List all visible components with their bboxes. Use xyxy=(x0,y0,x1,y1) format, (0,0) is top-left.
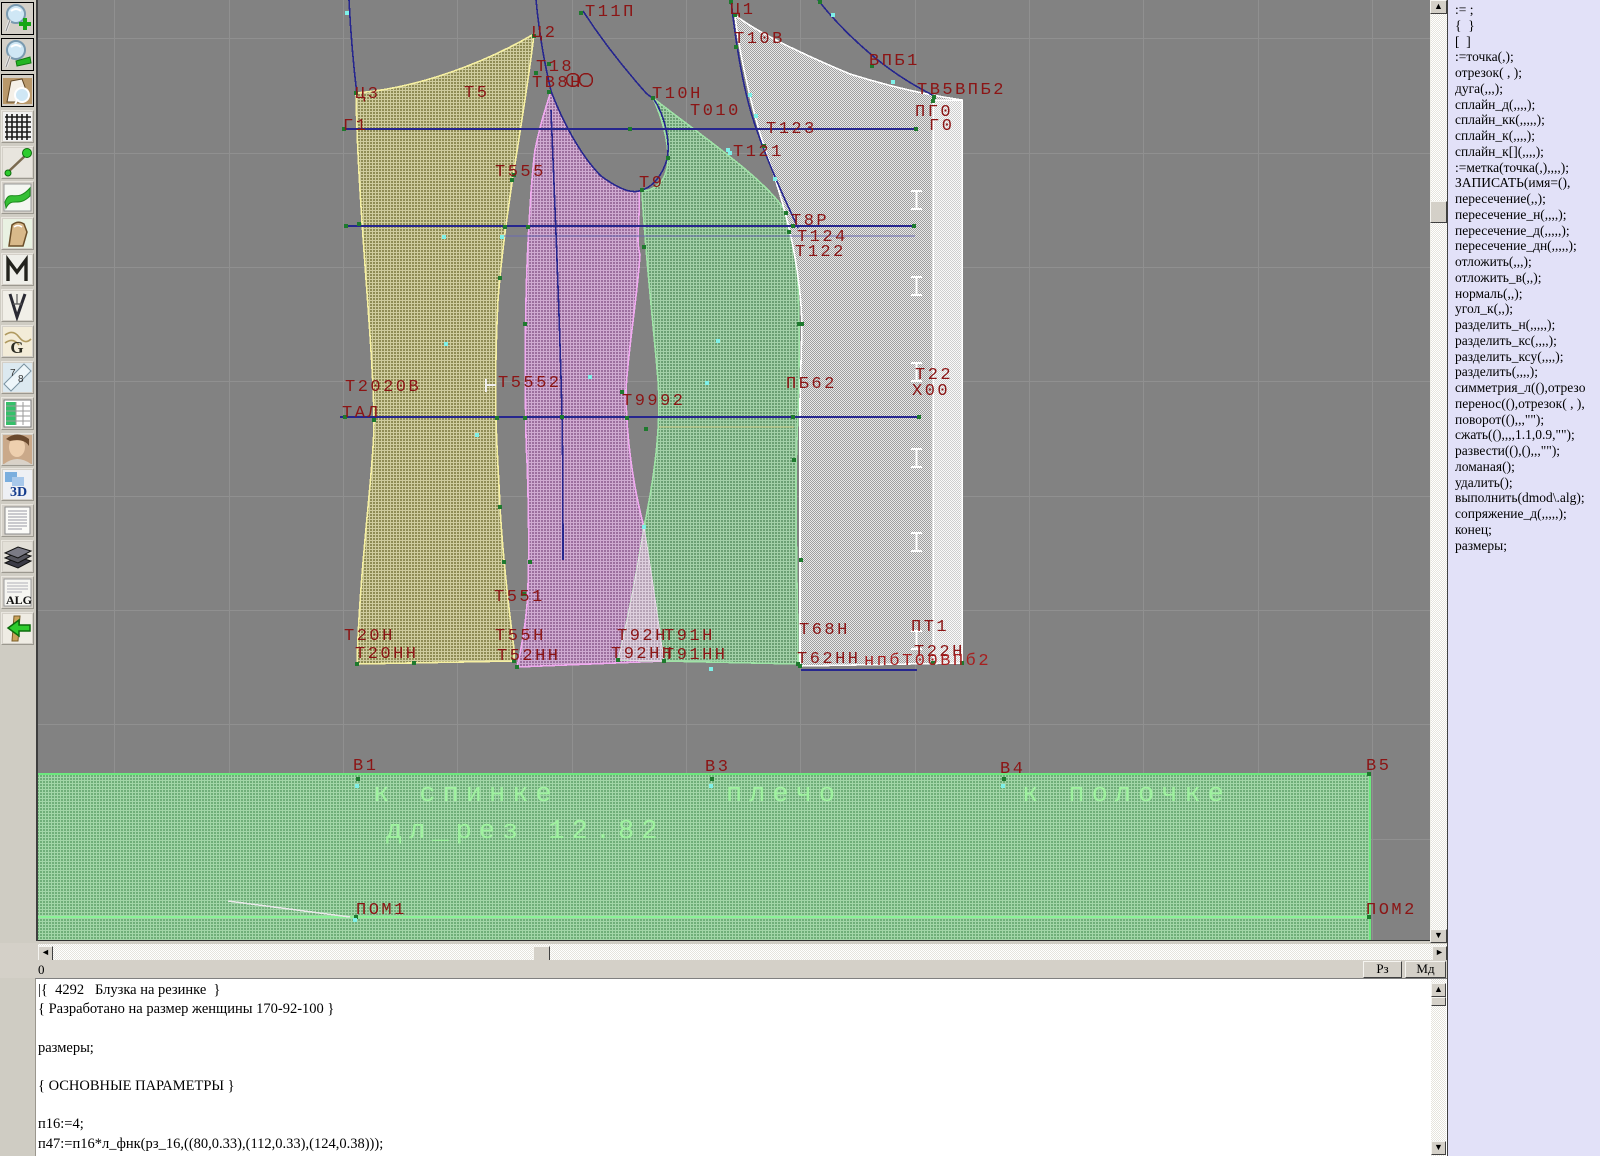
svg-text:В4: В4 xyxy=(1000,760,1025,779)
svg-text:Т122: Т122 xyxy=(795,243,846,262)
svg-text:к полочке: к полочке xyxy=(1022,780,1231,810)
svg-text:Ц2: Ц2 xyxy=(532,24,557,43)
svg-text:ПОМ1: ПОМ1 xyxy=(356,901,407,920)
svg-text:ПТ1: ПТ1 xyxy=(911,618,949,637)
svg-text:Т92Н: Т92Н xyxy=(617,627,668,646)
svg-text:Т91Н: Т91Н xyxy=(664,627,715,646)
svg-text:ТАЛ: ТАЛ xyxy=(342,404,380,423)
svg-text:Т68Н: Т68Н xyxy=(799,621,850,640)
svg-text:Т2020В: Т2020В xyxy=(345,378,421,397)
svg-text:Т10В: Т10В xyxy=(734,30,785,49)
svg-text:к спинке: к спинке xyxy=(373,780,559,810)
svg-text:Т9: Т9 xyxy=(639,174,664,193)
svg-text:Т121: Т121 xyxy=(733,143,784,162)
svg-text:Т5: Т5 xyxy=(464,84,489,103)
svg-text:дл_рез 12.82: дл_рез 12.82 xyxy=(386,817,664,847)
svg-text:Г0: Г0 xyxy=(929,117,954,136)
svg-text:Т9992: Т9992 xyxy=(622,392,686,411)
svg-text:Т010: Т010 xyxy=(690,102,741,121)
svg-text:3D: 3D xyxy=(10,485,27,500)
svg-text:Т20НН: Т20НН xyxy=(355,645,419,664)
svg-text:ТВ5ВПБ2: ТВ5ВПБ2 xyxy=(917,81,1006,100)
svg-text:7: 7 xyxy=(10,368,16,379)
svg-text:Т11П: Т11П xyxy=(585,3,636,22)
svg-text:ТВ8Н: ТВ8Н xyxy=(532,74,583,93)
svg-text:Г1: Г1 xyxy=(343,117,368,136)
svg-text:Х00: Х00 xyxy=(912,382,950,401)
svg-text:ПБ62: ПБ62 xyxy=(786,375,837,394)
svg-text:В1: В1 xyxy=(353,757,378,776)
svg-text:Ц3: Ц3 xyxy=(355,85,380,104)
svg-text:В5: В5 xyxy=(1366,757,1391,776)
svg-text:8: 8 xyxy=(18,374,24,385)
svg-text:Т555: Т555 xyxy=(495,163,546,182)
svg-text:нпбТ00ВПб2: нпбТ00ВПб2 xyxy=(864,652,991,671)
svg-text:ВПБ1: ВПБ1 xyxy=(869,52,920,71)
svg-text:G: G xyxy=(10,338,23,357)
svg-text:Т62НН: Т62НН xyxy=(797,650,861,669)
svg-text:Т91НН: Т91НН xyxy=(664,646,728,665)
svg-text:Т52НН: Т52НН xyxy=(497,647,561,666)
svg-text:В3: В3 xyxy=(705,758,730,777)
svg-text:Т5552: Т5552 xyxy=(498,374,562,393)
svg-text:ПОМ2: ПОМ2 xyxy=(1366,901,1417,920)
svg-text:Т123: Т123 xyxy=(766,120,817,139)
svg-text:Т55Н: Т55Н xyxy=(495,627,546,646)
svg-text:плечо: плечо xyxy=(726,780,842,810)
svg-text:Т551: Т551 xyxy=(494,588,545,607)
svg-text:Ц1: Ц1 xyxy=(730,1,755,20)
svg-text:ALG: ALG xyxy=(6,593,32,607)
svg-text:Т20Н: Т20Н xyxy=(344,627,395,646)
